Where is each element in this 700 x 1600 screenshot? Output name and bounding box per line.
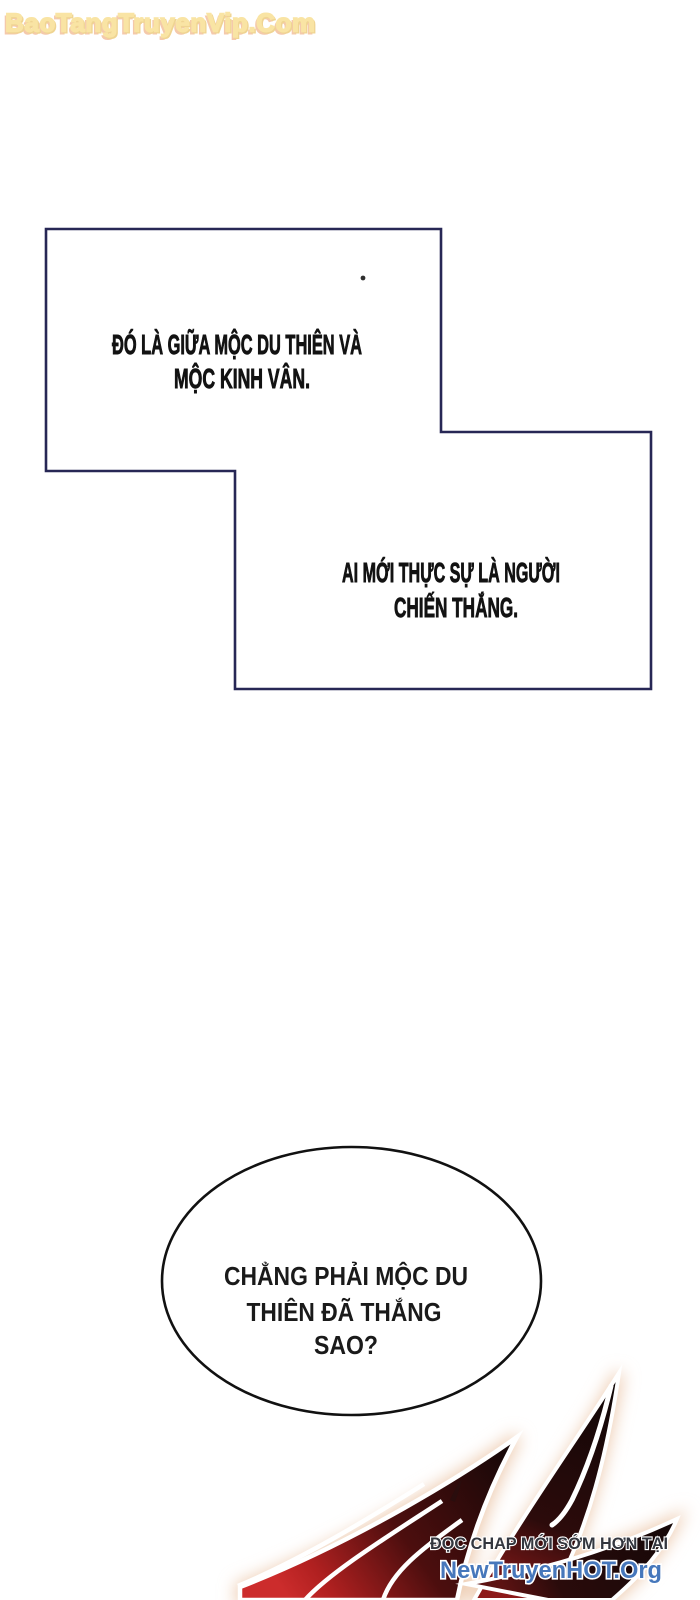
svg-text:MỘC KINH VÂN.: MỘC KINH VÂN. bbox=[174, 362, 310, 394]
svg-text:NewTruyenHOT.Org: NewTruyenHOT.Org bbox=[440, 1557, 662, 1584]
svg-text:CHẲNG PHẢI MỘC DU: CHẲNG PHẢI MỘC DU bbox=[224, 1261, 468, 1291]
svg-text:THIÊN ĐÃ THẮNG: THIÊN ĐÃ THẮNG bbox=[247, 1297, 442, 1327]
svg-text:ĐỌC CHAP MỚI SỚM HƠN TẠI: ĐỌC CHAP MỚI SỚM HƠN TẠI bbox=[430, 1534, 668, 1553]
svg-text:ĐÓ LÀ GIỮA MỘC DU THIÊN VÀ: ĐÓ LÀ GIỮA MỘC DU THIÊN VÀ bbox=[112, 328, 362, 360]
svg-text:SAO?: SAO? bbox=[314, 1330, 378, 1360]
svg-text:BaoTangTruyenVip.Com: BaoTangTruyenVip.Com bbox=[5, 8, 315, 38]
svg-text:CHIẾN THẮNG.: CHIẾN THẮNG. bbox=[394, 592, 518, 623]
svg-text:AI MỚI THỰC SỰ LÀ NGƯỜI: AI MỚI THỰC SỰ LÀ NGƯỜI bbox=[342, 557, 560, 588]
